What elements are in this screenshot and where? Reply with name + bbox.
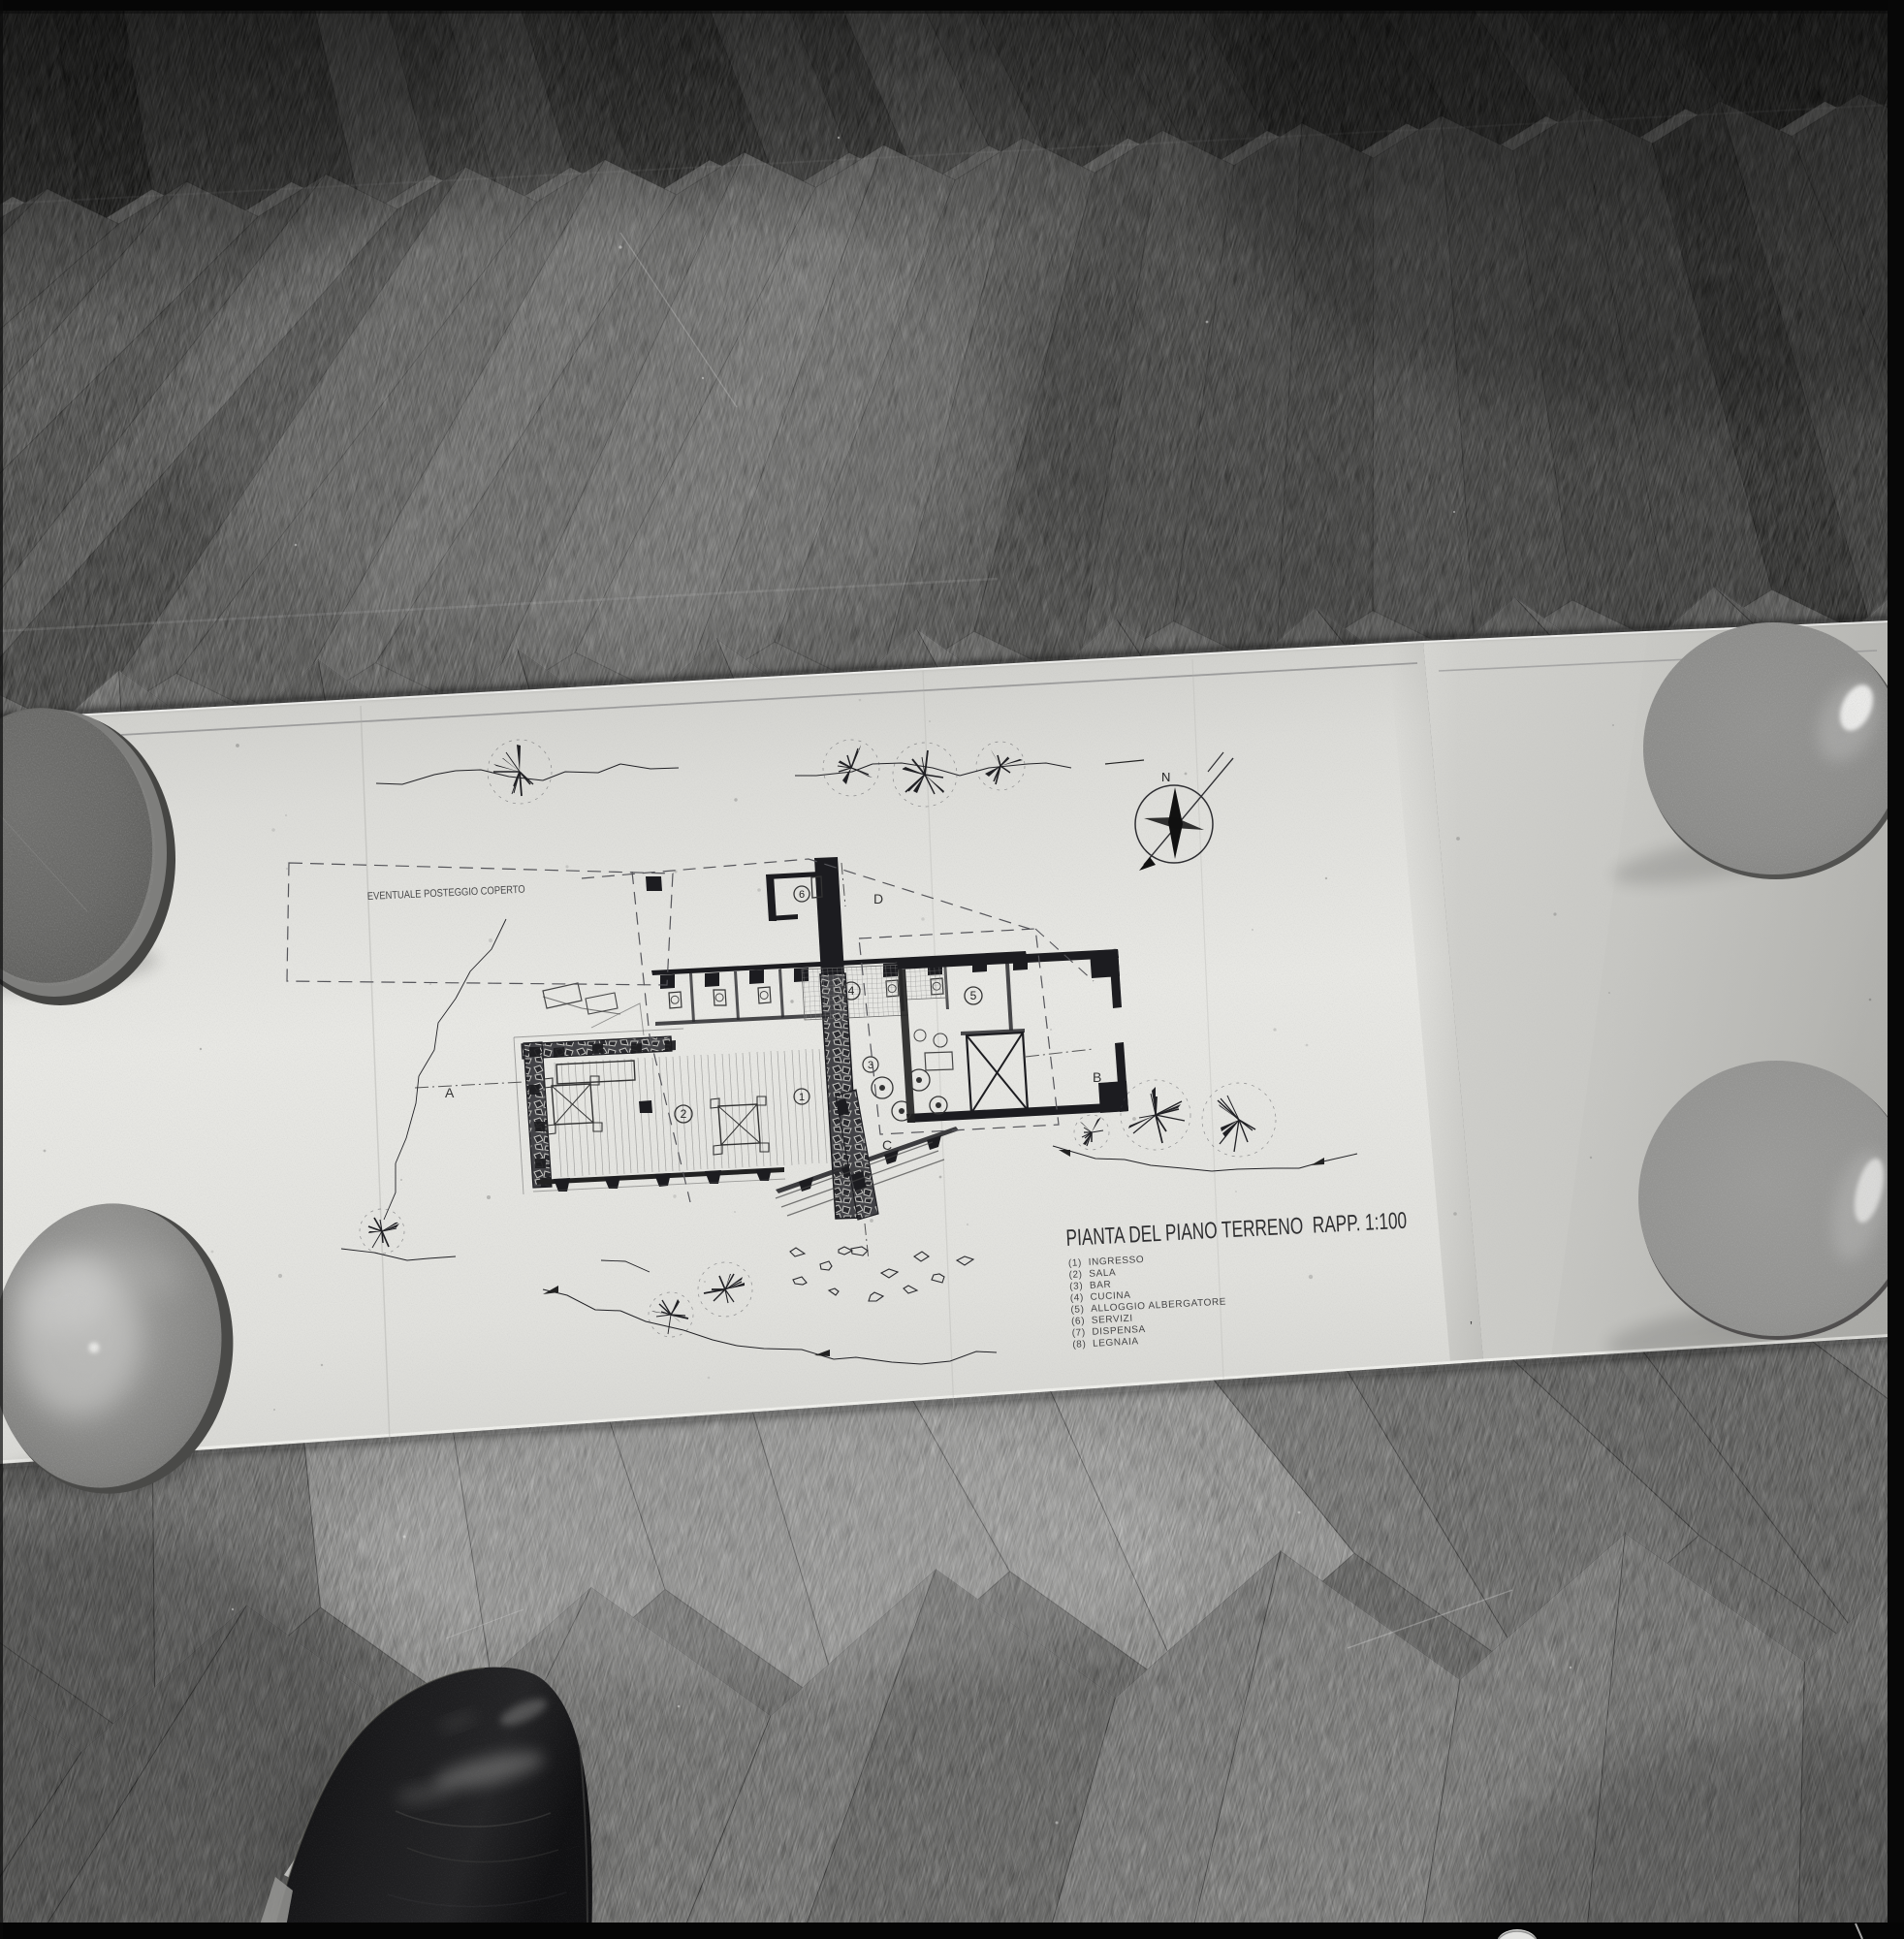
svg-text:2: 2 [681, 1107, 687, 1121]
svg-text:1: 1 [799, 1092, 805, 1103]
svg-text:D: D [873, 891, 883, 906]
svg-text:B: B [1093, 1069, 1101, 1085]
svg-text:’: ’ [1470, 1319, 1473, 1333]
svg-text:C: C [882, 1137, 892, 1153]
svg-text:6: 6 [799, 889, 805, 901]
svg-text:5: 5 [970, 989, 977, 1002]
svg-text:A: A [445, 1085, 455, 1100]
svg-text:N: N [1161, 770, 1170, 784]
svg-text:(3) BAR: (3) BAR [1069, 1280, 1112, 1292]
svg-text:4: 4 [848, 984, 855, 998]
